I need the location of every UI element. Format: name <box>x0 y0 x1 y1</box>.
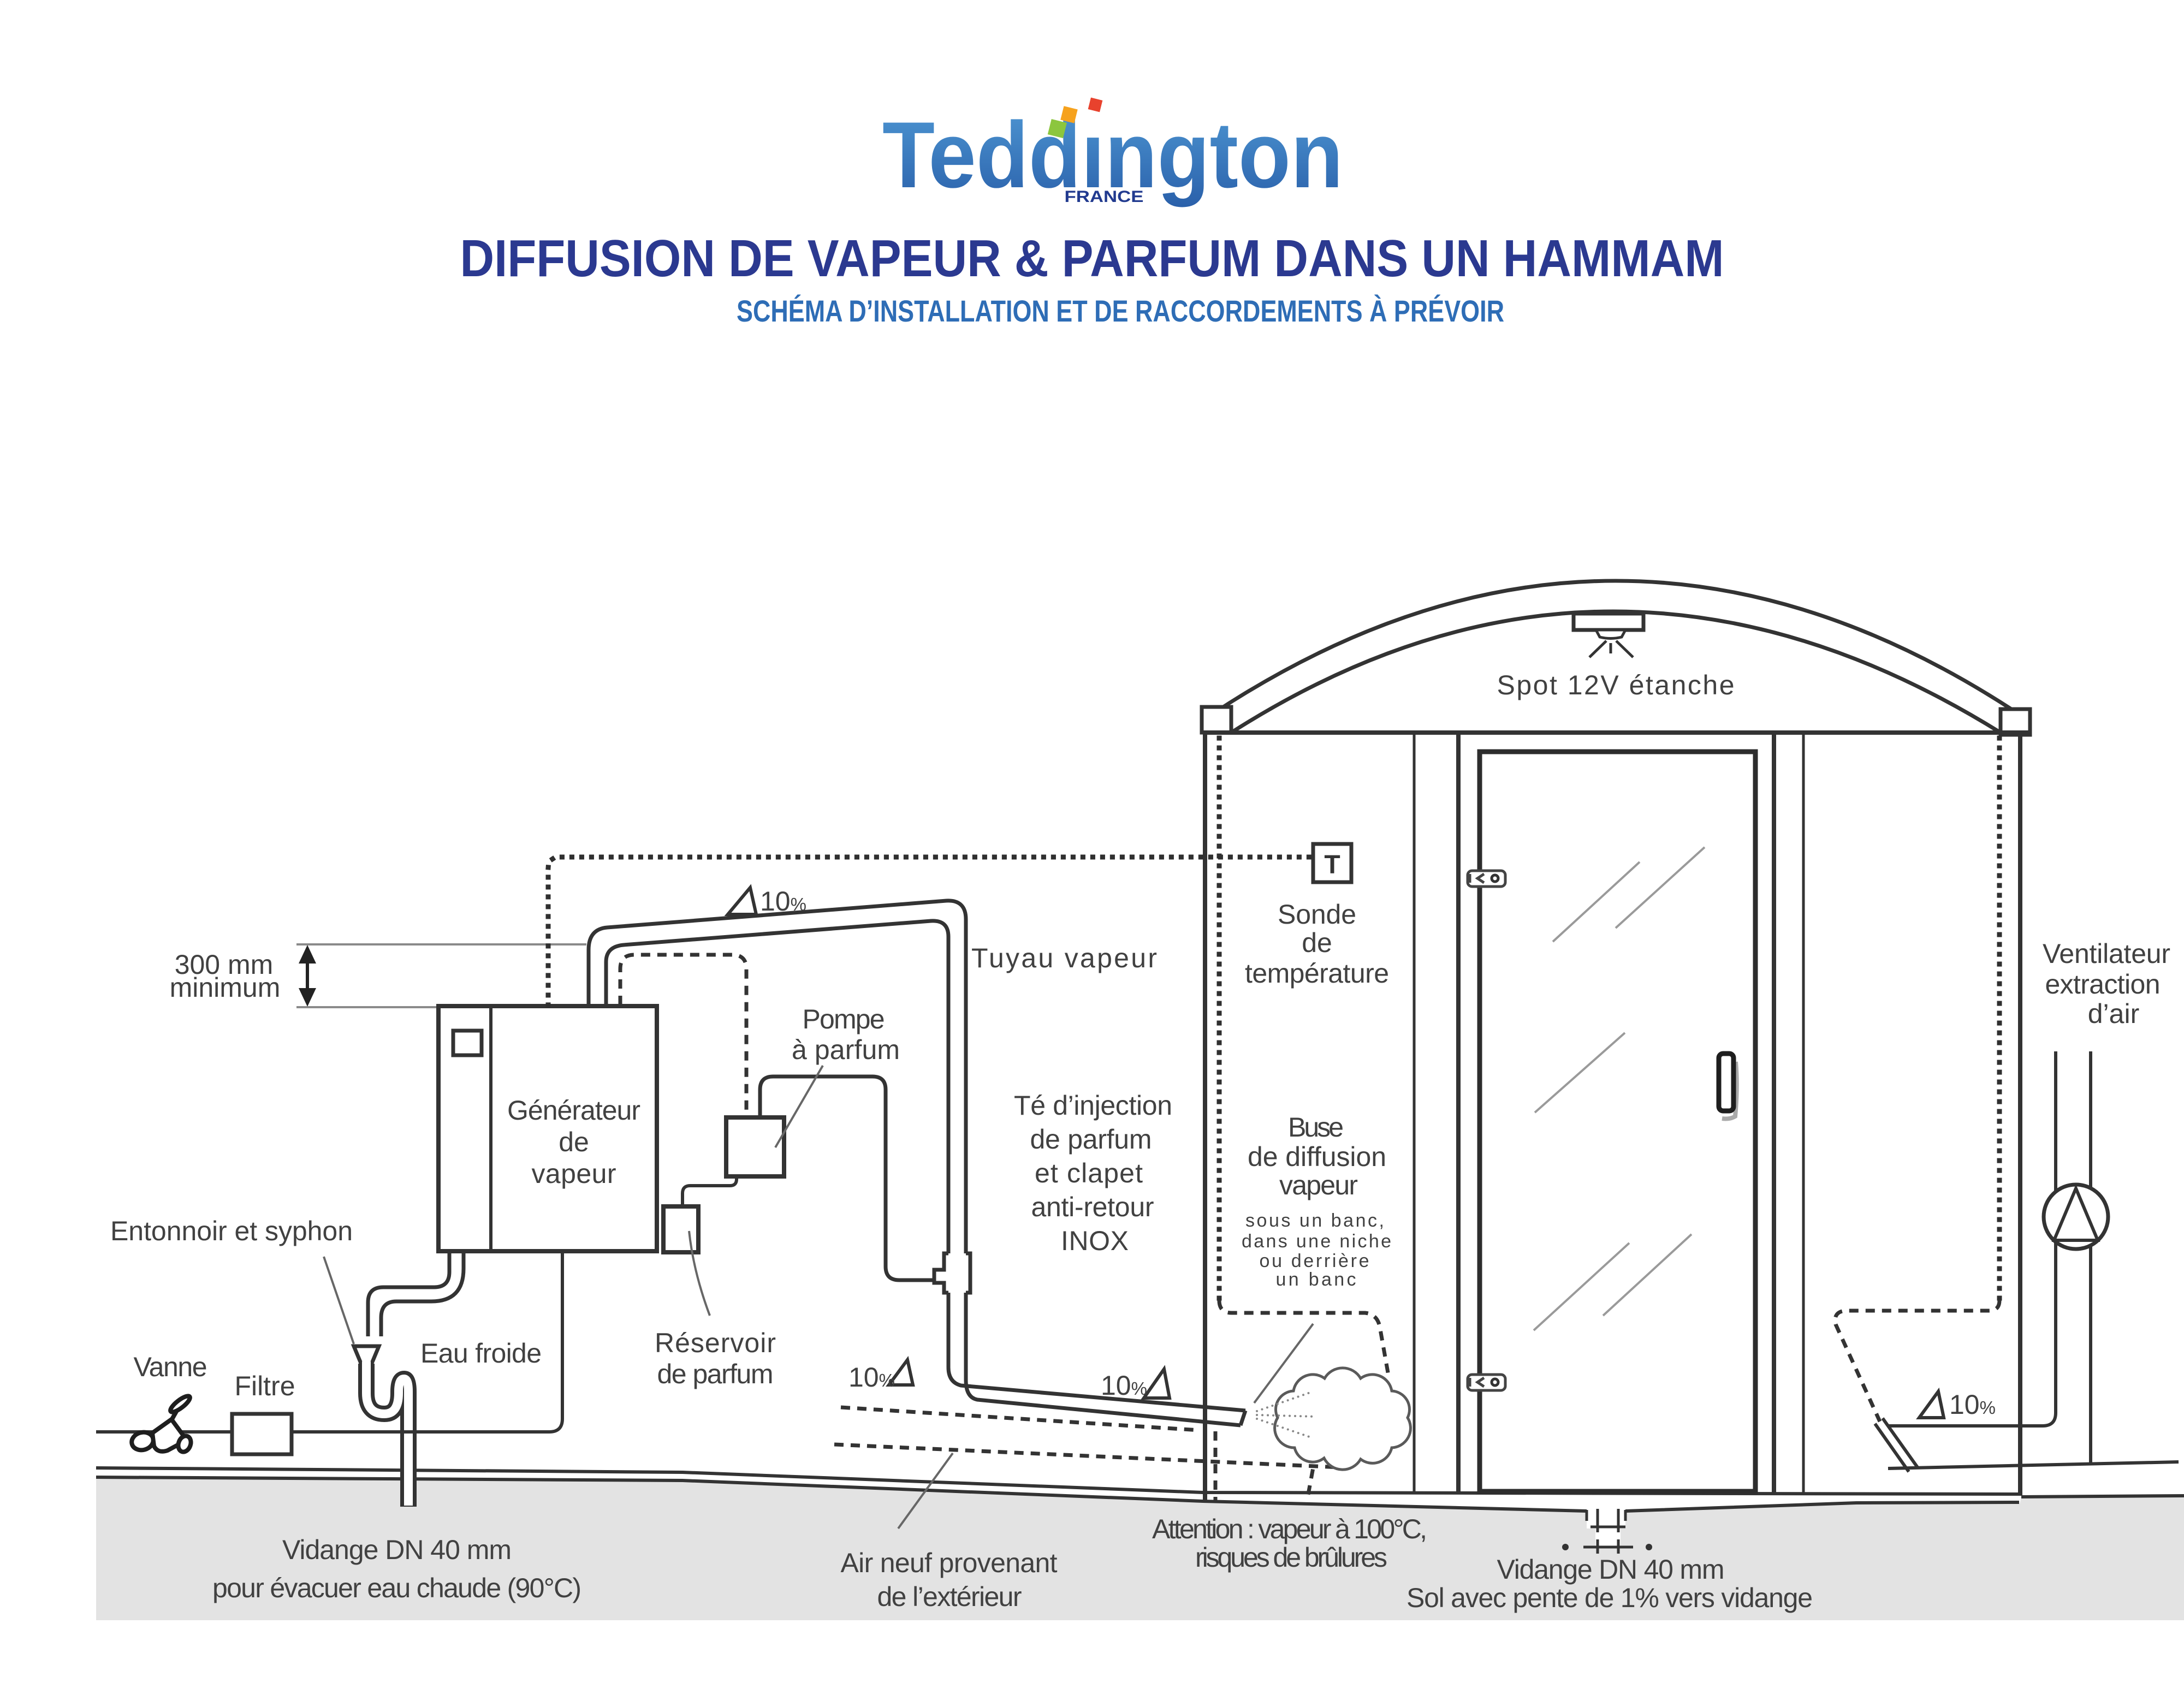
svg-text:risques de brûlures: risques de brûlures <box>1195 1542 1387 1573</box>
svg-text:de parfum: de parfum <box>657 1359 774 1389</box>
svg-text:Ventilateur: Ventilateur <box>2043 938 2170 969</box>
svg-text:de parfum: de parfum <box>1030 1124 1152 1155</box>
svg-text:Vanne: Vanne <box>134 1352 207 1382</box>
svg-text:de: de <box>1302 927 1332 958</box>
svg-text:vapeur: vapeur <box>532 1158 616 1189</box>
svg-text:à parfum: à parfum <box>792 1034 900 1065</box>
svg-text:Vidange DN 40 mm: Vidange DN 40 mm <box>282 1535 512 1565</box>
svg-text:Sol avec pente de 1% vers vida: Sol avec pente de 1% vers vidange <box>1406 1583 1813 1613</box>
svg-text:vapeur: vapeur <box>1279 1170 1358 1200</box>
svg-text:Réservoir: Réservoir <box>655 1328 776 1358</box>
svg-text:Attention : vapeur à 100°C,: Attention : vapeur à 100°C, <box>1152 1514 1427 1544</box>
svg-text:Pompe: Pompe <box>803 1004 885 1034</box>
svg-text:Filtre: Filtre <box>235 1371 295 1401</box>
svg-text:anti-retour: anti-retour <box>1031 1192 1154 1222</box>
svg-text:Générateur: Générateur <box>507 1095 640 1126</box>
svg-text:dans une niche: dans une niche <box>1242 1231 1391 1252</box>
svg-text:FRANCE: FRANCE <box>1065 188 1144 206</box>
svg-text:de diffusion: de diffusion <box>1248 1141 1386 1172</box>
svg-text:sous un banc,: sous un banc, <box>1245 1210 1384 1231</box>
svg-text:extraction: extraction <box>2045 969 2161 1000</box>
svg-text:Air neuf provenant: Air neuf provenant <box>841 1548 1058 1578</box>
svg-text:de: de <box>559 1127 589 1157</box>
svg-text:température: température <box>1245 958 1389 989</box>
svg-text:de l’extérieur: de l’extérieur <box>877 1581 1022 1612</box>
svg-text:Spot 12V étanche: Spot 12V étanche <box>1497 670 1735 700</box>
svg-text:minimum: minimum <box>170 972 281 1003</box>
svg-text:Té d’injection: Té d’injection <box>1014 1090 1172 1121</box>
svg-text:pour évacuer eau chaude (90°C): pour évacuer eau chaude (90°C) <box>212 1573 581 1603</box>
svg-text:Buse: Buse <box>1288 1112 1344 1143</box>
svg-text:Entonnoir et syphon: Entonnoir et syphon <box>110 1216 353 1246</box>
svg-text:d’air: d’air <box>2088 998 2139 1029</box>
svg-text:SCHÉMA D’INSTALLATION ET DE RA: SCHÉMA D’INSTALLATION ET DE RACCORDEMENT… <box>737 294 1504 328</box>
svg-text:et clapet: et clapet <box>1035 1158 1143 1188</box>
svg-text:Vidange DN 40 mm: Vidange DN 40 mm <box>1497 1554 1725 1585</box>
svg-text:T: T <box>1324 851 1340 879</box>
svg-text:Sonde: Sonde <box>1278 899 1356 930</box>
svg-text:DIFFUSION DE VAPEUR & PARFUM D: DIFFUSION DE VAPEUR & PARFUM DANS UN HAM… <box>460 229 1724 288</box>
svg-text:INOX: INOX <box>1061 1226 1129 1256</box>
svg-text:Eau froide: Eau froide <box>420 1338 542 1369</box>
